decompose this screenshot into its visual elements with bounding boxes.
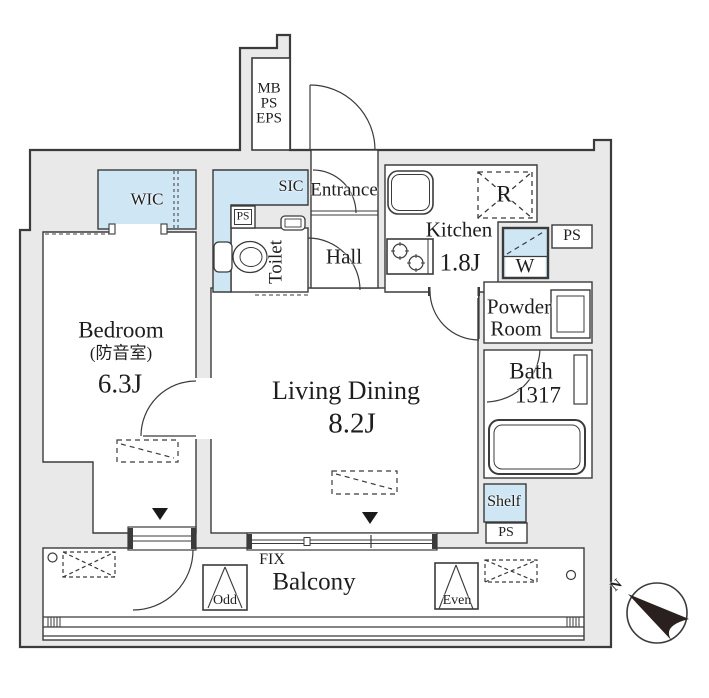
- fix-window-label: FIX: [259, 552, 285, 568]
- powder-room-label-2: Room: [490, 319, 541, 340]
- toilet-label: Toilet: [267, 240, 286, 284]
- ac-even-label: Even: [443, 594, 472, 608]
- living-dining-size-label: 8.2J: [328, 410, 376, 439]
- wic-door-jamb: [161, 224, 167, 234]
- shelf-label: Shelf: [487, 494, 521, 510]
- entrance-label: Entrance: [310, 181, 378, 200]
- ps-kitchen-label: PS: [563, 228, 581, 244]
- vanity-unit: [551, 290, 590, 338]
- living-window: [247, 533, 437, 550]
- bedroom-label: Bedroom: [78, 319, 164, 342]
- hall-label: Hall: [326, 247, 362, 268]
- washer-label: W: [516, 256, 535, 276]
- toilet-fixture: [214, 242, 267, 273]
- wic-opening: [112, 224, 164, 234]
- wic-door-jamb: [109, 224, 115, 234]
- bathtub: [489, 420, 585, 474]
- powder-door-opening: [430, 284, 478, 298]
- floor-plan: MB PS EPS WIC SIC PS Entrance Toilet Hal…: [0, 0, 709, 698]
- refrigerator-label: R: [496, 183, 511, 206]
- ac-odd-label: Odd: [213, 594, 237, 608]
- shaft-label-ps: PS: [261, 97, 278, 112]
- bedroom-door-opening: [194, 378, 214, 439]
- kitchen-stove: [387, 239, 433, 274]
- toilet-hand-basin: [281, 216, 305, 230]
- compass: [627, 583, 689, 643]
- wic-label: WIC: [130, 191, 163, 208]
- bath-counter: [574, 355, 587, 404]
- bath-label: Bath: [509, 360, 552, 383]
- bedroom-size-label: 6.3J: [98, 371, 142, 398]
- shaft-label-mb: MB: [257, 82, 280, 97]
- balcony-label: Balcony: [272, 570, 355, 595]
- bedroom-ja-label: (防音室): [90, 345, 152, 362]
- bedroom-window: [128, 527, 196, 550]
- ps-entry-label: PS: [237, 211, 250, 223]
- kitchen-label: Kitchen: [426, 220, 492, 241]
- sic-label: SIC: [279, 179, 304, 195]
- kitchen-size-label: 1.8J: [440, 251, 481, 276]
- bath-size-label: 1317: [515, 384, 561, 407]
- ps-balcony-label: PS: [498, 526, 514, 540]
- entrance-door: [310, 85, 375, 150]
- shaft-label-eps: EPS: [256, 112, 282, 127]
- powder-room-label-1: Powder: [487, 297, 551, 318]
- living-dining-label: Living Dining: [272, 378, 420, 404]
- kitchen-sink: [388, 171, 433, 214]
